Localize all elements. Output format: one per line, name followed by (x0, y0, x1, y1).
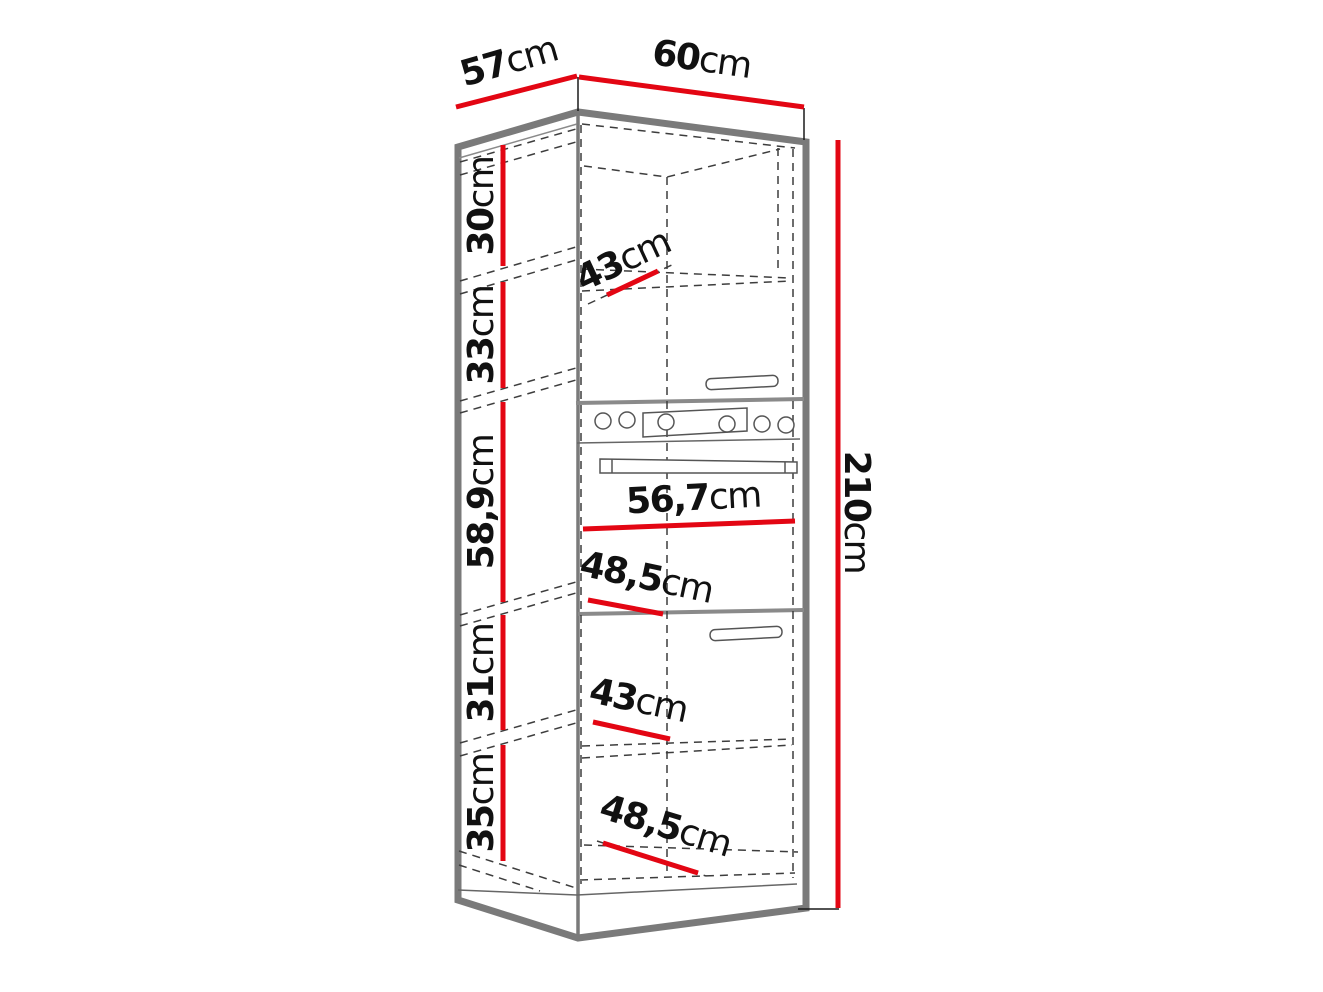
oven-knob-3 (658, 414, 674, 430)
oven-knob-6 (778, 417, 794, 433)
oven-knob-4 (719, 416, 735, 432)
lower-door-height-label: 31cm (461, 624, 502, 723)
oven-opening-width-label: 56,7cm (625, 475, 762, 523)
height-dimension-label: 210cm (836, 451, 877, 574)
diagram-canvas: 57cm 60cm 210cm 30cm 33cm 58,9cm 31cm 35… (0, 0, 1323, 992)
bottom-shelf-height-label: 35cm (461, 754, 502, 853)
oven-knob-5 (754, 416, 770, 432)
oven-knob-2 (619, 412, 635, 428)
oven-door-handle (600, 459, 797, 473)
width-dimension-line (579, 77, 804, 107)
cabinet-dimension-diagram: 57cm 60cm 210cm 30cm 33cm 58,9cm 31cm 35… (0, 0, 1323, 992)
width-dimension-label: 60cm (650, 32, 754, 86)
oven-compartment-height-label: 58,9cm (461, 435, 502, 570)
top-shelf-height-label: 30cm (461, 157, 502, 256)
oven-knob-1 (595, 413, 611, 429)
upper-door-height-label: 33cm (461, 286, 502, 385)
